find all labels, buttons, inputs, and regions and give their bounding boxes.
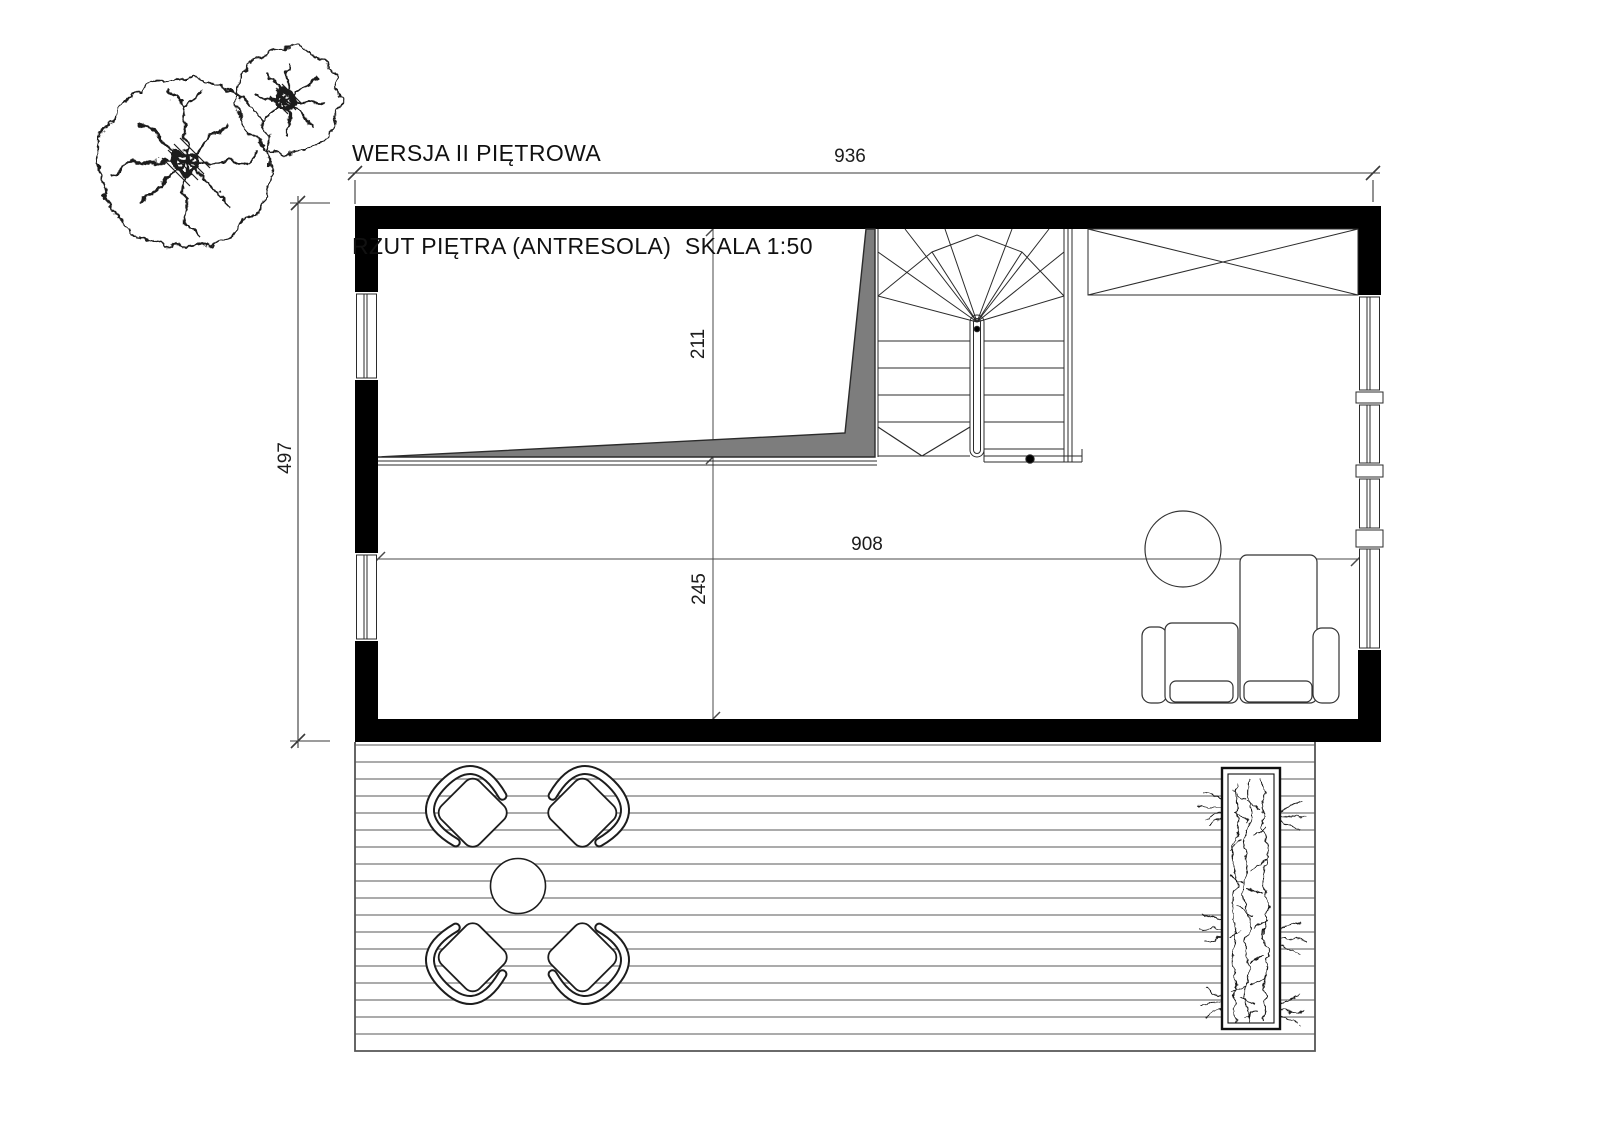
title-block: WERSJA II PIĘTROWA RZUT PIĘTRA (ANTRESOL… (352, 76, 813, 324)
mullion (1356, 465, 1383, 477)
armrest-right (1313, 628, 1339, 703)
dim-label-211: 211 (688, 329, 710, 359)
deck-table-round (491, 859, 546, 914)
deck-chair (418, 758, 517, 857)
floor-plan-sheet: WERSJA II PIĘTROWA RZUT PIĘTRA (ANTRESOL… (0, 0, 1600, 1131)
armrest-left (1142, 627, 1167, 703)
staircase (878, 229, 1082, 463)
side-table-round (1145, 511, 1221, 587)
title-line-2: RZUT PIĘTRA (ANTRESOLA) SKALA 1:50 (352, 231, 813, 262)
deck-chair (538, 758, 637, 857)
dim-label-497: 497 (275, 442, 297, 474)
wardrobe-box (1088, 229, 1358, 295)
window-wall-right (1356, 297, 1383, 648)
dim-label-908: 908 (851, 534, 883, 556)
lounge-furniture (1142, 511, 1339, 703)
deck-chair (538, 913, 637, 1012)
tree-symbol-large (99, 77, 271, 249)
mullion (1356, 530, 1383, 547)
seat-cushion (1170, 681, 1233, 702)
dim-label-936: 936 (834, 146, 866, 168)
window-left-lower (357, 555, 377, 639)
seat-cushion (1244, 681, 1312, 702)
mullion (1356, 392, 1383, 403)
handrail-post (1026, 455, 1034, 463)
tree-symbol-small (236, 48, 340, 152)
title-line-1: WERSJA II PIĘTROWA (352, 138, 813, 169)
dim-label-245: 245 (689, 573, 711, 605)
deck-chair (418, 913, 517, 1012)
